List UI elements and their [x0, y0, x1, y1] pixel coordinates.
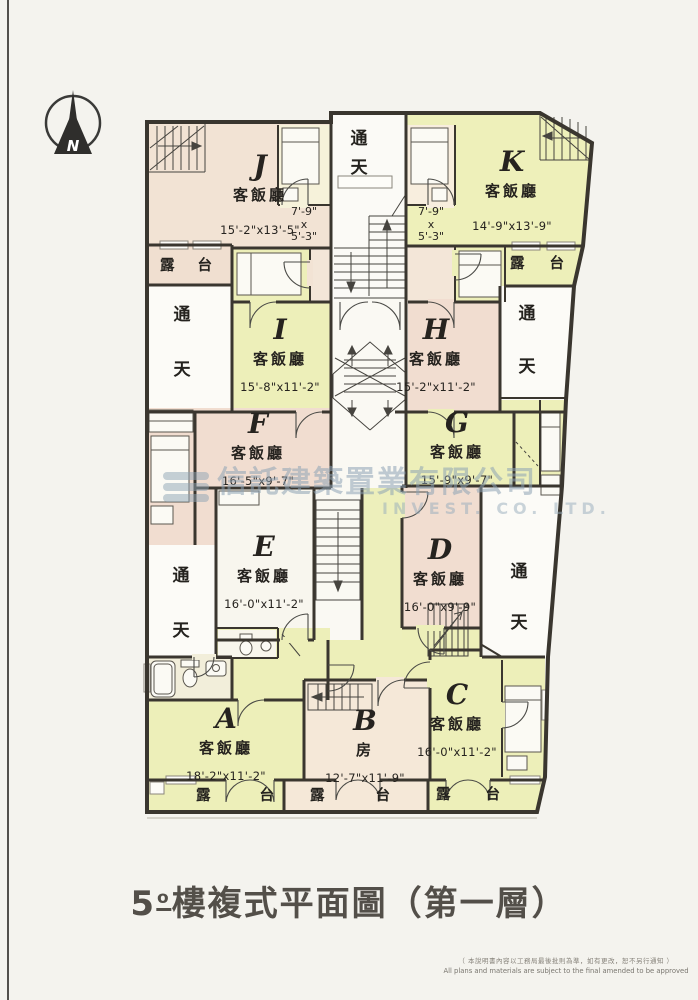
- unit-letter: A: [215, 705, 237, 733]
- dim-width: 7'-9": [291, 206, 317, 219]
- unit-letter: E: [253, 533, 274, 561]
- unit-dimensions: 16'-0"x9'-9": [404, 600, 476, 614]
- void-label-bottom-left: 通天: [166, 561, 196, 641]
- disclaimer-english: All plans and materials are subject to t…: [440, 967, 692, 975]
- unit-dimensions: 16'-0"x11'-2": [224, 597, 304, 611]
- unit-letter: D: [428, 536, 452, 564]
- title-text: 樓複式平面圖（第一層）: [172, 884, 568, 924]
- title-floor-sup: o: [156, 888, 172, 911]
- disclaimer: （ 本說明書內容以工務局最後批則為準，如有更改，恕不另行通知 ） All pla…: [440, 955, 692, 975]
- unit-letter: G: [445, 409, 469, 437]
- small-room-dims-left: 7'-9" x 5'-3": [275, 206, 333, 244]
- disclaimer-chinese: （ 本說明書內容以工務局最後批則為準，如有更改，恕不另行通知 ）: [440, 955, 692, 965]
- unit-label-I: I 客飯廳 15'-8"x11'-2": [220, 316, 340, 394]
- dim-width: 7'-9": [418, 206, 444, 219]
- unit-room-type: 客飯廳: [413, 568, 467, 589]
- unit-label-A: A 客飯廳 18'-2"x11'-2": [166, 705, 286, 783]
- unit-label-K: K 客飯廳 14'-9"x13'-9": [452, 148, 572, 233]
- unit-room-type: 客飯廳: [485, 180, 539, 201]
- void-label-mid-right: 通天: [512, 299, 542, 377]
- unit-room-type: 客飯廳: [253, 348, 307, 369]
- unit-dimensions: 15'-9"x9'-7": [421, 473, 493, 487]
- small-room-dims-right: 7'-9" x 5'-3": [402, 206, 460, 244]
- unit-dimensions: 18'-2"x11'-2": [186, 769, 266, 783]
- unit-dimensions: 12'-7"x11'-9": [325, 771, 405, 785]
- unit-label-D: D 客飯廳 16'-0"x9'-9": [380, 536, 500, 614]
- unit-letter: C: [446, 681, 468, 709]
- void-label-top-center: 通天: [344, 124, 374, 178]
- dim-height: 5'-3": [418, 231, 444, 244]
- balcony-label-a: 露台: [196, 784, 274, 805]
- unit-room-type: 客飯廳: [199, 737, 253, 758]
- unit-letter: J: [253, 152, 266, 180]
- unit-room-type: 客飯廳: [237, 565, 291, 586]
- unit-label-C: C 客飯廳 16'-0"x11'-2": [397, 681, 517, 759]
- unit-letter: H: [423, 316, 449, 344]
- unit-letter: F: [248, 410, 268, 438]
- unit-label-E: E 客飯廳 16'-0"x11'-2": [204, 533, 324, 611]
- balcony-label-top-left: 露台: [160, 254, 212, 275]
- dim-height: 5'-3": [291, 231, 317, 244]
- unit-dimensions: 16'-5"x9'-7": [222, 474, 294, 488]
- unit-room-type: 客飯廳: [430, 441, 484, 462]
- scanned-floorplan-page: N J 客飯廳 15'-2"x13'-5" K 客飯廳 14'-9"x13'-9…: [0, 0, 698, 1000]
- unit-dimensions: 16'-0"x11'-2": [417, 745, 497, 759]
- unit-room-type: 客飯廳: [409, 348, 463, 369]
- void-label-mid-left: 通天: [167, 300, 197, 380]
- unit-dimensions: 15'-8"x11'-2": [240, 380, 320, 394]
- compass-n-label: N: [67, 137, 80, 155]
- unit-letter: K: [500, 148, 524, 176]
- void-label-bottom-right: 通天: [504, 557, 534, 633]
- unit-room-type: 房: [356, 739, 374, 760]
- unit-room-type: 客飯廳: [233, 184, 287, 205]
- unit-label-F: F 客飯廳 16'-5"x9'-7": [198, 410, 318, 488]
- balcony-label-c: 露台: [436, 783, 500, 804]
- unit-label-H: H 客飯廳 15'-2"x11'-2": [376, 316, 496, 394]
- compass: N: [46, 90, 100, 155]
- unit-dimensions: 15'-2"x11'-2": [396, 380, 476, 394]
- balcony-label-top-right: 露台: [510, 252, 564, 273]
- unit-room-type: 客飯廳: [231, 442, 285, 463]
- unit-room-type: 客飯廳: [430, 713, 484, 734]
- title-floor-number: 5: [130, 884, 156, 924]
- balcony-label-b: 露台: [310, 784, 390, 805]
- unit-dimensions: 14'-9"x13'-9": [472, 219, 552, 233]
- unit-letter: B: [353, 707, 377, 735]
- unit-letter: I: [273, 316, 286, 344]
- unit-label-G: G 客飯廳 15'-9"x9'-7": [397, 409, 517, 487]
- page-title: 5o樓複式平面圖（第一層）: [130, 876, 567, 925]
